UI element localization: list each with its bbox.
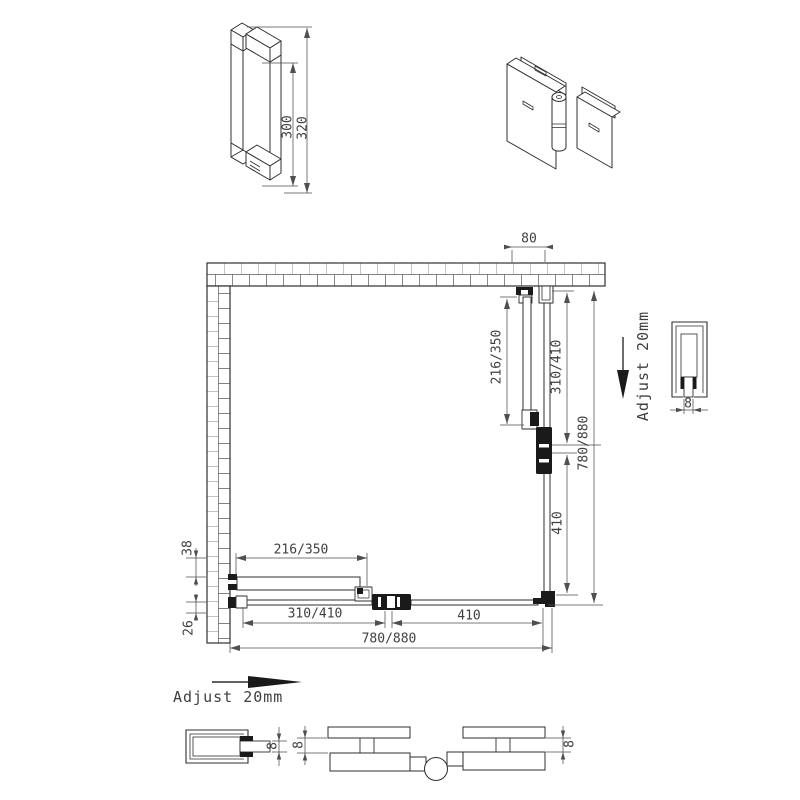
adjust-note-right: Adjust 20mm [634, 311, 652, 421]
wall-profile-section-bottom [186, 730, 270, 763]
plan-dim-top-offset: 80 [521, 232, 537, 247]
plan-dim-left-lower: 26 [182, 620, 197, 636]
plan-dim-bottom-right: 410 [457, 609, 480, 624]
handle-isometric-view [231, 23, 281, 180]
adjust-arrow-right [617, 337, 629, 399]
plan-dim-right-upper: 310/410 [550, 340, 565, 395]
hinge-pivot [425, 758, 448, 781]
drawing-linework [0, 0, 800, 800]
plan-dim-right-lower: 410 [551, 511, 566, 534]
plan-bottom-panel-assembly [228, 574, 555, 610]
plan-dim-bottom-overall: 780/880 [362, 632, 417, 647]
plan-dim-bottom-door: 216/350 [274, 543, 329, 558]
hinge-section-right-glass-dim: 8 [563, 740, 578, 748]
wall-profile-section-right [672, 322, 707, 397]
bottom-door-open-position [237, 577, 360, 590]
plan-dim-right-door: 216/350 [490, 330, 505, 385]
adjust-arrow-bottom [212, 676, 302, 688]
hinge-section-left-glass-dim: 8 [292, 741, 307, 749]
handle-dim-overall: 320 [296, 116, 311, 139]
plan-dim-bottom-left: 310/410 [288, 607, 343, 622]
right-door-panel [523, 297, 531, 423]
profile-bottom-glass-dim: 8 [266, 742, 281, 750]
plan-dim-left-upper: 38 [181, 540, 196, 556]
shower-enclosure-technical-drawing: 300 320 80 216/350 310/410 410 780/880 2… [0, 0, 800, 800]
handle-dim-length: 300 [281, 115, 296, 138]
plan-right-panel-assembly [516, 286, 553, 594]
hinge-section-bottom [328, 727, 545, 781]
plan-dim-right-overall: 780/880 [577, 416, 592, 471]
dimension-lines [186, 27, 708, 766]
profile-right-glass-dim: 8 [684, 397, 692, 412]
adjust-note-bottom: Adjust 20mm [173, 688, 283, 706]
glass-hinge-isometric-view [507, 57, 620, 169]
right-hinge [536, 427, 552, 474]
